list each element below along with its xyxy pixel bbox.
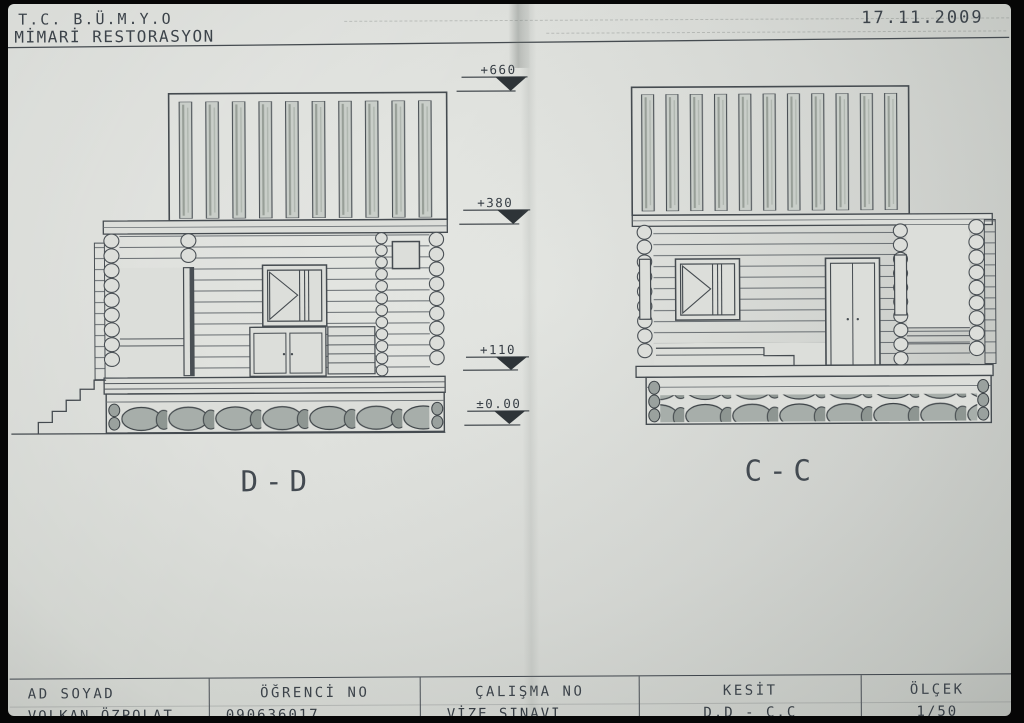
scan-black-frame: T.C. B.Ü.M.Y.O MİMARİ RESTORASYON 17.11.…: [0, 0, 1024, 723]
student-no-label: ÖĞRENCİ NO: [210, 684, 420, 701]
elevation-value-660: +660: [480, 62, 516, 77]
section-label: KESİT: [640, 682, 861, 699]
cc-post-right: [894, 255, 906, 315]
sheet-content: T.C. B.Ü.M.Y.O MİMARİ RESTORASYON 17.11.…: [8, 4, 1011, 716]
section-label-dd: D-D: [241, 464, 315, 498]
dd-porch-post: [184, 268, 195, 376]
elevation-datum-icon: [494, 411, 525, 424]
scale-value: 1/50: [862, 703, 1011, 716]
title-block-col-section: KESİT D.D - C.C: [639, 675, 861, 716]
dd-window: [263, 265, 327, 326]
dd-log-ends-right: [429, 232, 444, 364]
drawing-sheet: T.C. B.Ü.M.Y.O MİMARİ RESTORASYON 17.11.…: [8, 4, 1011, 716]
elevation-value-110: +110: [480, 342, 516, 357]
section-label-cc: C-C: [744, 453, 818, 487]
dd-vent-window: [392, 241, 419, 268]
cc-window: [675, 259, 739, 320]
cc-post-left: [639, 259, 650, 319]
work-no-value: VİZE SINAVI: [421, 705, 639, 716]
work-no-label: ÇALIŞMA NO: [421, 683, 639, 700]
title-block-col-scale: ÖLÇEK 1/50: [861, 674, 1011, 716]
cc-foundation: [646, 375, 991, 424]
title-block-col-student-no: ÖĞRENCİ NO 090636017: [209, 677, 420, 716]
dd-dresser: [328, 327, 375, 374]
dd-stairs: [38, 380, 106, 433]
title-block-col-work-no: ÇALIŞMA NO VİZE SINAVI: [420, 676, 639, 716]
right-elevation-drawing: [632, 85, 997, 424]
title-block: AD SOYAD VOLKAN ÖZPOLAT ÖĞRENCİ NO 09063…: [10, 673, 1011, 716]
elevation-datum-icon: [497, 210, 529, 224]
dd-foundation: [106, 392, 444, 433]
dd-log-ends-left: [104, 234, 120, 366]
cc-planks: [640, 93, 905, 211]
cc-edge-strip: [984, 219, 996, 363]
elevation-markers: [457, 77, 532, 425]
technical-drawing-canvas: [8, 4, 1011, 716]
cc-corner-stones-right: [978, 379, 989, 420]
elevation-datum-icon: [496, 357, 527, 370]
title-block-col-name: AD SOYAD VOLKAN ÖZPOLAT: [10, 679, 209, 716]
header-rule: [8, 37, 1009, 47]
cc-door: [825, 258, 880, 365]
dd-corner-strip: [94, 243, 105, 380]
section-value: D.D - C.C: [640, 704, 861, 716]
name-value: VOLKAN ÖZPOLAT: [10, 708, 209, 716]
cc-log-ends-right: [969, 220, 985, 356]
elevation-datum-icon: [496, 77, 527, 91]
dd-cabinet: [250, 327, 326, 376]
elevation-marker-380: [459, 210, 530, 224]
dd-planks: [177, 100, 442, 218]
scale-label: ÖLÇEK: [862, 681, 1011, 698]
elevation-marker-110: [463, 357, 529, 370]
elevation-value-000: ±0.00: [476, 396, 521, 411]
name-label: AD SOYAD: [10, 686, 209, 703]
elevation-marker-660: [457, 77, 528, 91]
dd-floor-band: [104, 376, 445, 394]
student-no-value: 090636017: [210, 706, 420, 716]
elevation-marker-000: [464, 411, 529, 425]
left-elevation-drawing: [10, 92, 449, 434]
cc-corner-stones-left: [649, 381, 660, 422]
elevation-value-380: +380: [477, 195, 513, 210]
